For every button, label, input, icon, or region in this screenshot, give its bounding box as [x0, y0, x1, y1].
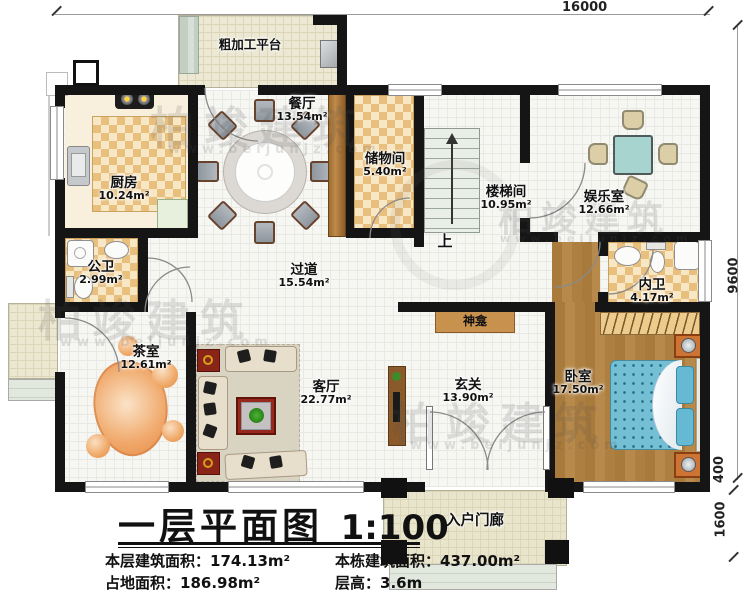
- wall: [138, 238, 148, 312]
- floor-cushion: [162, 420, 184, 442]
- wall: [55, 372, 65, 492]
- wall: [258, 85, 347, 95]
- wall: [188, 85, 198, 237]
- porch-pillar: [545, 540, 569, 564]
- entry-door-leaf: [543, 406, 550, 470]
- wall: [55, 482, 85, 492]
- wall: [520, 232, 558, 242]
- nightstand-lamp-icon: [681, 338, 696, 353]
- porch-pillar: [548, 478, 574, 498]
- plant-icon: [392, 372, 401, 381]
- room-label-platform: 粗加工平台: [195, 38, 305, 51]
- window: [583, 481, 675, 493]
- game-chair: [588, 143, 608, 165]
- room-label-stairwell: 楼梯间10.95m²: [470, 185, 542, 211]
- wall: [346, 228, 424, 238]
- bed-pillow: [676, 408, 694, 446]
- wall: [55, 85, 188, 95]
- stairs-arrow-icon: [446, 133, 458, 144]
- room-label-tea-room: 茶室12.61m²: [110, 345, 182, 371]
- wall: [398, 302, 555, 312]
- room-label-bedroom: 卧室17.50m²: [540, 370, 616, 396]
- dim-right-offset: 400: [712, 456, 727, 483]
- tv-icon: [393, 392, 400, 422]
- porch-pillar: [381, 478, 407, 498]
- window: [698, 240, 712, 302]
- side-patio-steps: [8, 379, 58, 401]
- sofa-cushion: [203, 402, 217, 416]
- washbasin-icon: [104, 241, 129, 259]
- flue-box: [73, 60, 99, 86]
- wall: [186, 312, 196, 492]
- stat-footprint: 占地面积：186.98m²: [105, 572, 260, 593]
- wall: [673, 482, 710, 492]
- window: [85, 481, 169, 493]
- sink-basin: [71, 153, 86, 177]
- sofa-cushion: [269, 455, 283, 469]
- dim-porch-depth: 1600: [714, 501, 729, 537]
- dining-chair: [254, 221, 275, 244]
- dining-chair: [196, 161, 219, 182]
- room-label-foyer: 玄关13.90m²: [432, 378, 504, 404]
- speaker-cone-icon: [203, 458, 213, 468]
- toilet-tank-icon: [646, 242, 666, 250]
- sofa-cushion: [203, 381, 217, 395]
- room-label-dining: 餐厅13.54m²: [268, 97, 336, 123]
- sofa-cushion: [263, 349, 277, 363]
- wall: [700, 300, 710, 492]
- wall: [55, 85, 65, 108]
- nightstand-lamp-icon: [681, 457, 696, 472]
- wall: [168, 482, 228, 492]
- window: [50, 106, 64, 180]
- wall: [55, 302, 148, 312]
- stairs-arrow-shaft: [451, 142, 453, 224]
- entry-door-leaf: [426, 406, 433, 470]
- dim-top-width: 16000: [562, 0, 607, 15]
- window: [558, 84, 662, 96]
- dim-tick-icon: [728, 485, 738, 495]
- dim-right-depth: 9600: [727, 257, 742, 293]
- wall: [520, 85, 530, 163]
- shrine-shelf: 神龛: [435, 310, 515, 333]
- bed-pillow: [676, 366, 694, 404]
- speaker-cone-icon: [203, 355, 213, 365]
- title-underline: [118, 542, 420, 545]
- wall: [440, 85, 560, 95]
- floor-cushion: [86, 434, 110, 458]
- dim-line-right: [737, 25, 738, 480]
- sofa-side: [225, 346, 297, 372]
- dim-line-top: [55, 14, 710, 15]
- plant-icon: [249, 408, 264, 423]
- washbasin-icon: [614, 246, 641, 266]
- wall: [337, 15, 347, 88]
- title-underline-thin: [118, 547, 420, 548]
- shower-tray-icon: [674, 241, 700, 270]
- wall: [55, 228, 198, 238]
- sofa-side: [224, 450, 307, 480]
- stairs-up-label: 上: [434, 234, 456, 250]
- room-label-public-bath: 公卫2.99m²: [72, 260, 130, 286]
- wall: [700, 85, 710, 240]
- dim-tick-icon: [728, 552, 738, 562]
- toilet-bowl-icon: [650, 251, 665, 273]
- room-label-storage: 储物间5.40m²: [350, 152, 420, 178]
- wall: [598, 232, 710, 242]
- shrine-label: 神龛: [463, 314, 487, 328]
- room-label-corridor: 过道15.54m²: [268, 263, 340, 289]
- room-label-living: 客厅22.77m²: [290, 380, 362, 406]
- room-label-private-bath: 内卫4.17m²: [618, 278, 686, 304]
- wardrobe-hangers: [600, 312, 700, 335]
- window: [228, 481, 364, 493]
- game-table: [613, 135, 653, 175]
- stat-height: 层高：3.6m: [335, 572, 422, 593]
- lazy-susan: [257, 164, 273, 180]
- shower-drain-icon: [74, 247, 86, 259]
- game-chair: [658, 143, 678, 165]
- side-patio: [8, 303, 58, 379]
- game-chair: [622, 110, 644, 130]
- room-label-kitchen: 厨房10.24m²: [88, 176, 160, 202]
- floor-plan-canvas: 16000 9600 400 1600: [0, 0, 750, 599]
- wall: [598, 242, 608, 256]
- window: [388, 84, 442, 96]
- stat-floor-area: 本层建筑面积：174.13m²: [105, 550, 290, 571]
- stat-total-area: 本栋建筑面积：437.00m²: [335, 550, 520, 571]
- wall: [55, 178, 65, 318]
- room-label-entertainment: 娱乐室12.66m²: [568, 190, 640, 216]
